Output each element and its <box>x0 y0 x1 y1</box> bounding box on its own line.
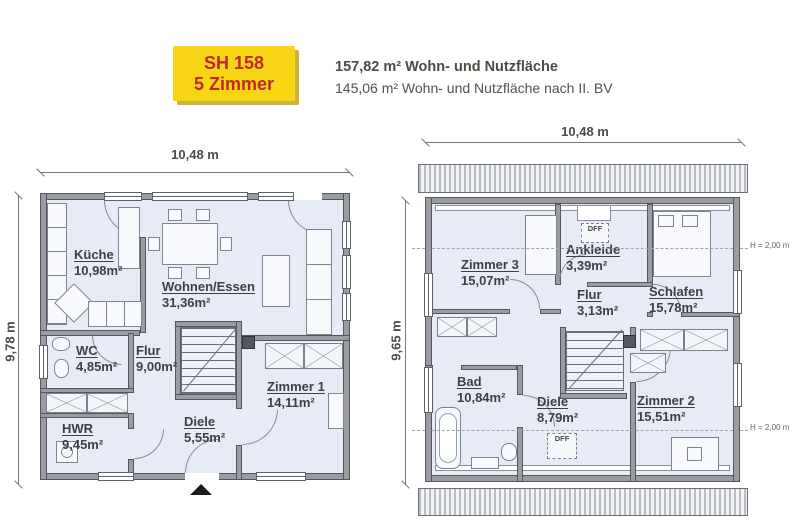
chair <box>196 209 210 221</box>
of-height-dim-line <box>405 200 406 485</box>
wall-kitchen-bottom <box>40 330 140 336</box>
wall-stairs-bottom <box>175 394 242 400</box>
room-label-zimmer3: Zimmer 3 15,07m² <box>461 257 519 289</box>
wc-toilet <box>54 359 69 378</box>
gf-width-dim-line <box>40 172 350 173</box>
roof-window-frame <box>577 205 611 221</box>
badge-model: SH 158 <box>204 53 264 74</box>
bad-toilet <box>501 443 517 461</box>
chair <box>148 237 160 251</box>
wall-zimmer1-top <box>242 335 350 341</box>
window <box>733 363 742 407</box>
window <box>424 273 433 317</box>
door-arc-zimmer1 <box>242 409 278 445</box>
window <box>39 345 48 379</box>
height-note-bottom: H = 2,00 m <box>750 423 789 432</box>
desk <box>328 393 344 429</box>
room-label-diele-og: Diele 8,79m² <box>537 394 578 426</box>
room-label-wohnen-essen: Wohnen/Essen 31,36m² <box>162 279 255 311</box>
window <box>342 293 351 321</box>
wall-exterior-top <box>425 197 740 204</box>
room-label-kueche: Küche 10,98m² <box>74 247 122 279</box>
wardrobe <box>640 329 684 351</box>
wall-hwr-top <box>40 413 134 418</box>
wall-bad-right <box>517 427 523 482</box>
bathtub-inner <box>439 413 457 463</box>
wc-sink <box>52 337 70 351</box>
room-label-ankleide: Ankleide 3,39m² <box>566 242 620 274</box>
wall-wc-right <box>128 333 134 390</box>
entrance-opening <box>185 473 219 480</box>
chair <box>196 267 210 279</box>
of-width-dim-line <box>425 142 742 143</box>
wardrobe <box>304 343 343 369</box>
room-label-schlafen: Schlafen 15,78m² <box>649 284 703 316</box>
wardrobe <box>630 353 666 373</box>
wardrobe <box>467 317 497 337</box>
wardrobe <box>684 329 728 351</box>
wall-exterior-left <box>425 197 432 482</box>
bad-vanity <box>471 457 499 469</box>
wall-bad-top <box>461 365 517 370</box>
total-area-line: 157,82 m² Wohn- und Nutzfläche <box>335 59 558 75</box>
wall-zimmer1-left <box>236 321 242 409</box>
chair <box>687 447 702 461</box>
room-label-flur: Flur 9,00m² <box>136 343 177 375</box>
floorplan-sheet: SH 158 5 Zimmer 157,82 m² Wohn- und Nutz… <box>0 0 800 528</box>
window <box>98 472 134 481</box>
wardrobe <box>46 393 87 413</box>
roof-window-dff: DFF <box>547 433 577 459</box>
kitchen-bench <box>88 301 142 327</box>
wall-bad-right <box>517 365 523 395</box>
wall-exterior-bottom <box>425 475 740 482</box>
wardrobe <box>265 343 304 369</box>
window <box>152 192 248 201</box>
upper-floor-plan: DFF DFF Zimmer 3 15,07m² Ankleide 3,39m²… <box>425 197 740 482</box>
height-line-top <box>412 248 748 249</box>
height-line-bottom <box>412 430 748 431</box>
dining-table <box>162 223 218 265</box>
wall-exterior-right <box>733 197 740 482</box>
window <box>733 270 742 314</box>
window <box>424 367 433 413</box>
window <box>342 221 351 249</box>
room-label-hwr: HWR 9,45m² <box>62 421 103 453</box>
room-label-zimmer2: Zimmer 2 15,51m² <box>637 393 695 425</box>
single-bed <box>525 215 557 275</box>
gf-height-dim-line <box>18 195 19 485</box>
chimney <box>242 336 255 349</box>
wall-exterior-left <box>40 193 47 480</box>
chimney <box>623 335 636 348</box>
terrace-door-opening <box>294 193 322 200</box>
wardrobe <box>437 317 467 337</box>
chair <box>220 237 232 251</box>
height-note-top: H = 2,00 m <box>750 241 789 250</box>
room-label-wc: WC 4,85m² <box>76 343 117 375</box>
door-arc-hwr <box>134 429 164 459</box>
chair <box>168 267 182 279</box>
pillow <box>658 215 674 227</box>
ground-floor-plan: Küche 10,98m² Wohnen/Essen 31,36m² WC 4,… <box>40 193 350 480</box>
room-label-zimmer1: Zimmer 1 14,11m² <box>267 379 325 411</box>
wardrobe <box>87 393 128 413</box>
window <box>342 255 351 289</box>
coffee-table <box>262 255 290 307</box>
gf-height-dimension: 9,78 m <box>3 314 18 370</box>
pillow <box>682 215 698 227</box>
roof-eave-top <box>418 164 748 193</box>
bv-area-line: 145,06 m² Wohn- und Nutzfläche nach II. … <box>335 80 613 96</box>
wall-hwr-right <box>128 413 134 429</box>
window <box>256 472 306 481</box>
wall-zimmer3-bottom <box>540 309 561 314</box>
wall-zimmer2-left <box>630 382 636 482</box>
of-width-dimension: 10,48 m <box>545 124 625 139</box>
sofa <box>306 229 332 335</box>
wall-zimmer3-bottom <box>425 309 510 314</box>
badge-room-count: 5 Zimmer <box>194 74 274 95</box>
chair <box>168 209 182 221</box>
entrance-arrow-icon <box>190 484 212 495</box>
roof-eave-bottom <box>418 488 748 516</box>
room-label-diele: Diele 5,55m² <box>184 414 225 446</box>
gf-width-dimension: 10,48 m <box>155 147 235 162</box>
of-height-dimension: 9,65 m <box>389 313 404 369</box>
product-badge: SH 158 5 Zimmer <box>173 46 295 101</box>
room-label-bad: Bad 10,84m² <box>457 374 505 406</box>
roof-window-dff: DFF <box>581 223 609 243</box>
room-label-flur-og: Flur 3,13m² <box>577 287 618 319</box>
wall-zimmer1-left <box>236 445 242 480</box>
